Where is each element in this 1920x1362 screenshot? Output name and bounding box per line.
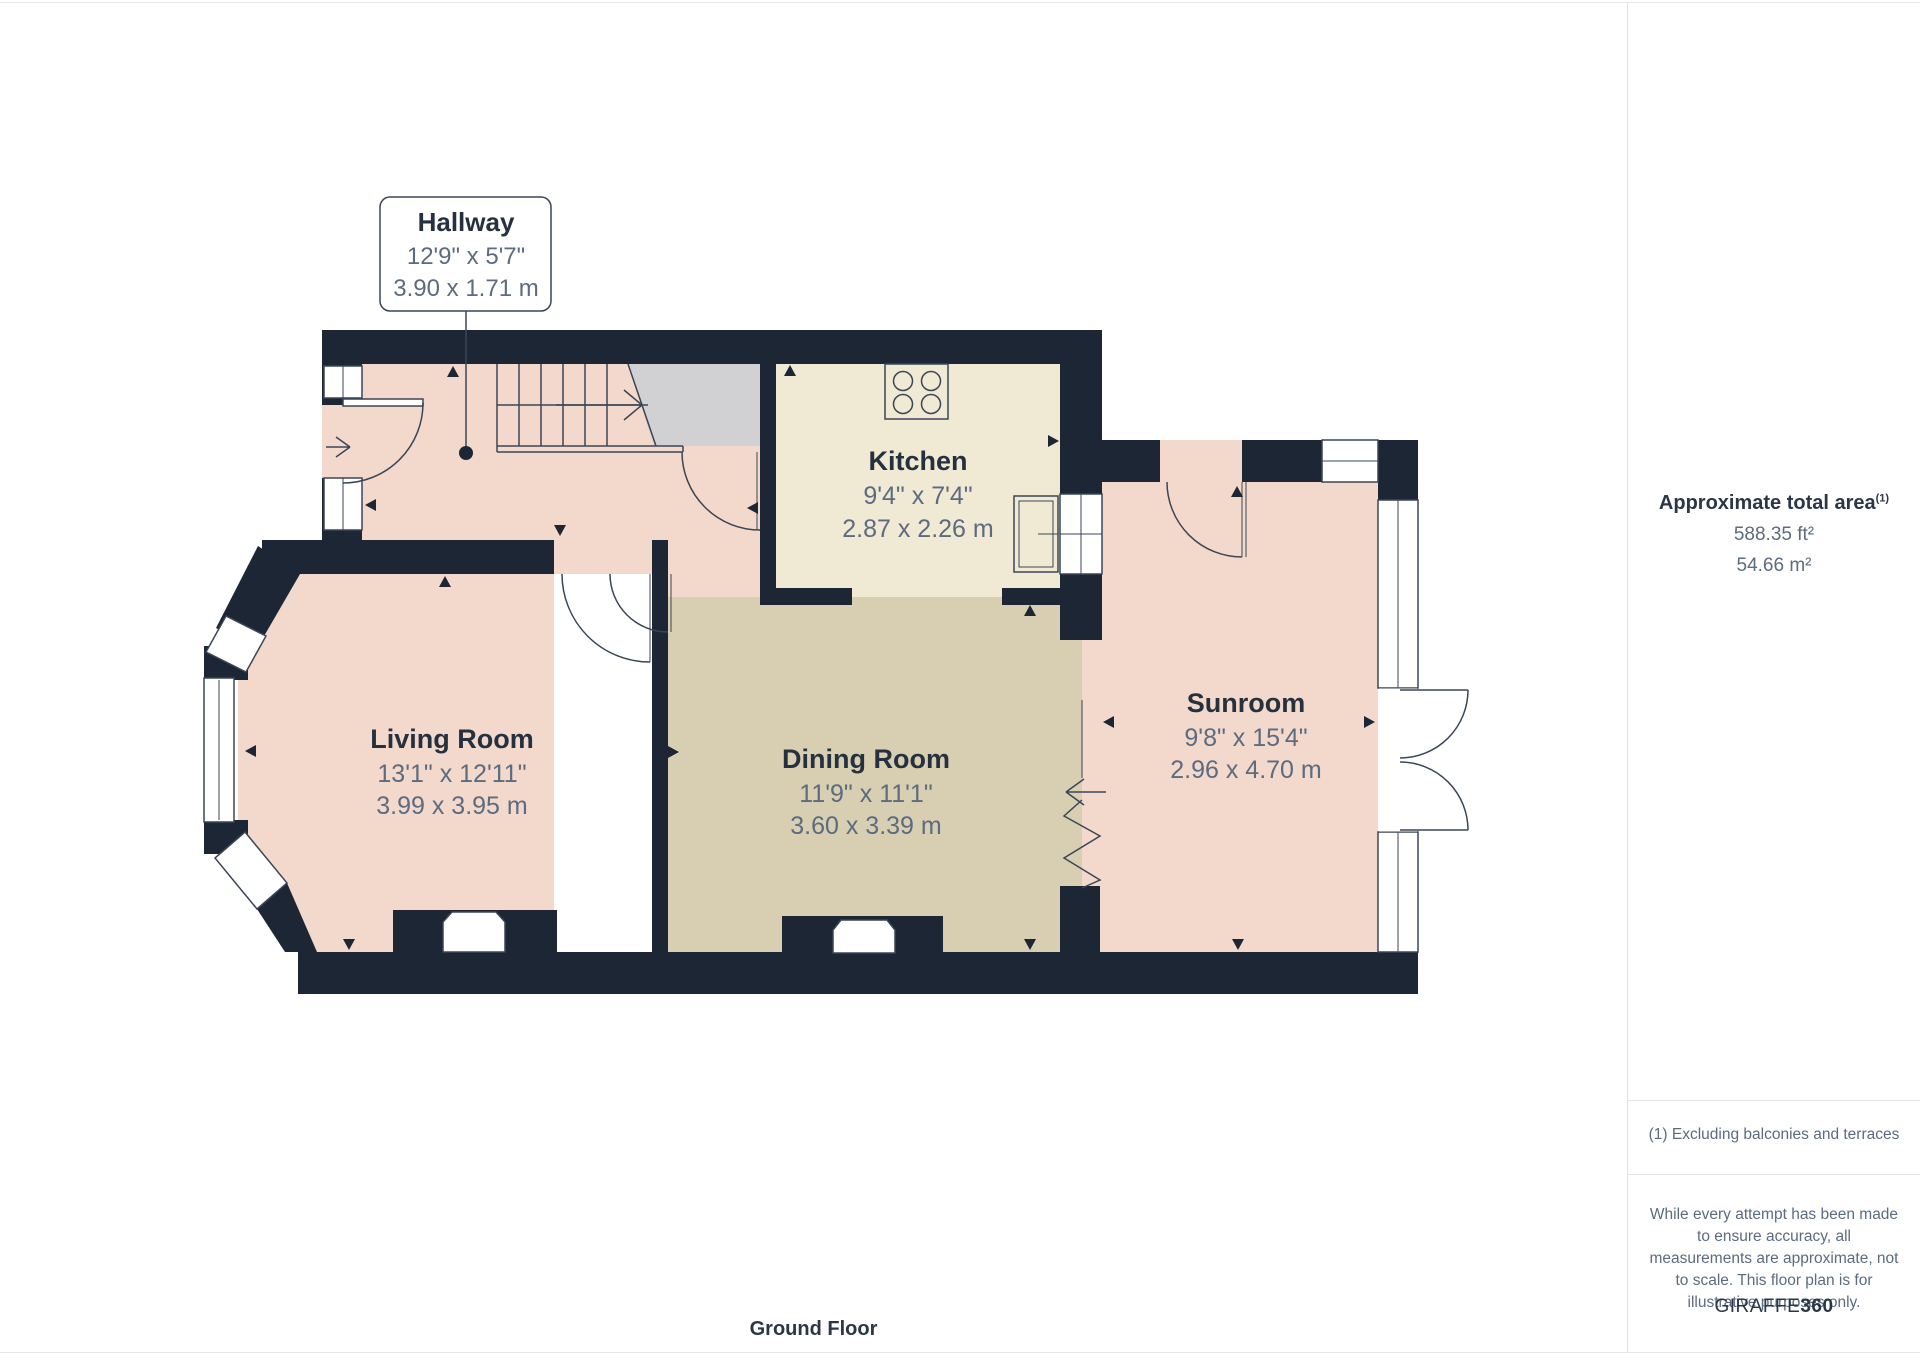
sidebar: Approximate total area(1) 588.35 ft² 54.… — [1628, 0, 1920, 1357]
room-imperial: 9'4" x 7'4" — [863, 482, 972, 510]
floor-title: Ground Floor — [0, 1318, 1627, 1341]
brand-regular: GIRAFFE — [1714, 1296, 1800, 1317]
corridor-floor — [668, 534, 760, 597]
area-footnote: (1) Excluding balconies and terraces — [1628, 1126, 1920, 1144]
callout-metric: 3.90 x 1.71 m — [393, 275, 538, 302]
floor-plan-area: Hallway 12'9" x 5'7" 3.90 x 1.71 m Kitch… — [0, 0, 1627, 1357]
dining-room-floor — [668, 597, 1082, 952]
dining-room-label: Dining Room 11'9" x 11'1" 3.60 x 3.39 m — [782, 744, 950, 840]
floor-plan-canvas: Hallway 12'9" x 5'7" 3.90 x 1.71 m Kitch… — [0, 0, 1627, 1357]
sunroom-door-gap-floor — [1160, 440, 1242, 482]
room-name: Sunroom — [1187, 688, 1306, 718]
brand-bold: 360 — [1800, 1296, 1833, 1317]
room-imperial: 13'1" x 12'11" — [377, 760, 526, 788]
callout-anchor-dot — [459, 446, 473, 460]
room-metric: 3.60 x 3.39 m — [790, 812, 941, 840]
total-area-ft: 588.35 ft² — [1628, 524, 1920, 546]
callout-room-name: Hallway — [418, 207, 515, 237]
room-name: Kitchen — [868, 446, 967, 476]
living-room-label: Living Room 13'1" x 12'11" 3.99 x 3.95 m — [370, 724, 534, 820]
room-imperial: 9'8" x 15'4" — [1184, 724, 1307, 752]
total-area-m: 54.66 m² — [1628, 555, 1920, 577]
callout-imperial: 12'9" x 5'7" — [407, 243, 525, 270]
room-name: Living Room — [370, 724, 534, 754]
room-imperial: 11'9" x 11'1" — [799, 780, 932, 808]
room-name: Dining Room — [782, 744, 950, 774]
total-area-title: Approximate total area(1) — [1628, 492, 1920, 515]
sidebar-divider-top — [1628, 1100, 1920, 1101]
hall-door-gap-floor — [554, 534, 652, 574]
total-area-block: Approximate total area(1) 588.35 ft² 54.… — [1628, 492, 1920, 577]
kitchen-floor — [776, 364, 1060, 597]
dining-fireplace-icon — [833, 920, 895, 953]
giraffe360-logo: GIRAFFE360 — [1628, 1296, 1920, 1318]
living-fireplace-icon — [443, 912, 505, 952]
total-area-title-text: Approximate total area — [1659, 492, 1876, 514]
room-metric: 2.87 x 2.26 m — [842, 515, 993, 543]
sidebar-divider-bottom — [1628, 1174, 1920, 1175]
living-room-door-icon — [562, 574, 650, 662]
room-metric: 3.99 x 3.95 m — [376, 792, 527, 820]
sunroom-label: Sunroom 9'8" x 15'4" 2.96 x 4.70 m — [1170, 688, 1321, 784]
total-area-superscript: (1) — [1876, 492, 1889, 504]
room-floors — [238, 364, 1378, 952]
french-doors-icon — [1378, 688, 1468, 832]
room-metric: 2.96 x 4.70 m — [1170, 756, 1321, 784]
